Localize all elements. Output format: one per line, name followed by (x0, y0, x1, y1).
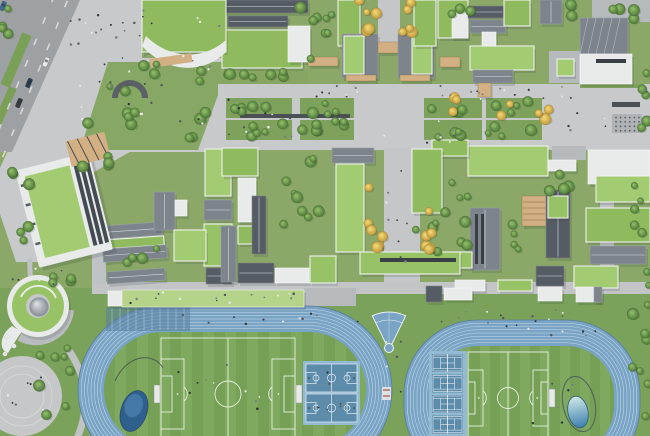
person-dot (233, 316, 235, 318)
building (204, 200, 234, 223)
hoop (353, 377, 355, 379)
building (557, 59, 576, 79)
person-dot (18, 279, 20, 281)
person-dot (594, 330, 596, 332)
building (122, 290, 306, 310)
person-dot (264, 112, 266, 114)
person-dot (30, 383, 32, 385)
skylight-slot (481, 214, 484, 264)
building (470, 46, 536, 73)
tree-green (640, 329, 649, 338)
building (108, 291, 124, 309)
hoop (353, 407, 355, 409)
building (238, 263, 276, 286)
hoop (308, 377, 310, 379)
person-dot (245, 131, 247, 133)
tree-green (248, 122, 257, 131)
tree-green (627, 308, 639, 320)
mow-stripe (225, 332, 236, 436)
person-dot (385, 201, 387, 203)
person-dot (115, 36, 118, 39)
start-zone (106, 307, 190, 331)
tree-green (153, 61, 160, 68)
tree-green (77, 161, 89, 173)
person-dot (229, 302, 231, 304)
person-dot (215, 297, 217, 299)
skylight-dot (634, 125, 636, 127)
person-dot (197, 382, 199, 384)
person-dot (476, 90, 478, 92)
tree-green (130, 108, 139, 117)
person-dot (556, 407, 558, 409)
person-dot (406, 222, 408, 224)
person-dot (336, 85, 338, 87)
person-dot (340, 405, 342, 407)
person-dot (500, 315, 502, 317)
person-dot (502, 317, 504, 319)
tree-green (643, 268, 650, 275)
person-dot (38, 387, 40, 389)
tree-green (511, 230, 518, 237)
tree-green (262, 128, 269, 135)
person-dot (27, 382, 29, 384)
person-dot (40, 377, 42, 379)
person-dot (192, 60, 194, 62)
tree-green (307, 55, 315, 63)
person-dot (179, 298, 181, 300)
person-dot (104, 63, 106, 65)
building (378, 42, 400, 56)
building (586, 208, 650, 245)
tree-green (489, 121, 500, 132)
person-dot (440, 85, 442, 87)
skylight-dot (615, 117, 617, 119)
person-dot (548, 318, 550, 320)
tree-green (637, 123, 646, 132)
skylight-dot (629, 130, 631, 132)
person-dot (326, 409, 328, 411)
person-dot (256, 407, 259, 410)
person-dot (481, 93, 483, 95)
mow-stripe (247, 332, 258, 436)
person-dot (124, 30, 126, 32)
roof (594, 287, 602, 302)
person-dot (316, 315, 318, 317)
person-dot (400, 341, 402, 343)
person-dot (356, 91, 358, 93)
person-dot (299, 317, 301, 319)
tree-green (200, 107, 211, 118)
person-dot (542, 97, 544, 99)
tree-green (136, 253, 147, 264)
person-dot (506, 325, 508, 327)
person-dot (284, 136, 286, 138)
building (504, 0, 532, 29)
skylight-slot (596, 59, 626, 63)
skylight-dot (620, 130, 622, 132)
tree-green (4, 5, 12, 13)
roof (344, 36, 364, 74)
tree-green (195, 77, 204, 86)
person-dot (216, 300, 218, 302)
person-dot (151, 22, 153, 24)
building (412, 149, 444, 216)
person-dot (453, 135, 455, 137)
roof (580, 18, 628, 54)
tree-green (7, 167, 17, 177)
skylight-dot (624, 117, 626, 119)
roof (468, 146, 548, 176)
mow-stripe (520, 346, 530, 436)
person-dot (277, 295, 279, 297)
person-dot (267, 126, 270, 129)
person-dot (290, 135, 292, 137)
tree-green (265, 69, 276, 80)
roof (288, 26, 310, 62)
tree-yellow (535, 109, 543, 117)
building (221, 226, 238, 285)
tree-green (332, 108, 340, 116)
tree-yellow (426, 228, 436, 238)
tree-green (297, 125, 307, 135)
tree-green (485, 130, 491, 136)
person-dot (290, 297, 292, 299)
tree-green (459, 216, 471, 228)
tree-yellow (366, 225, 377, 236)
person-dot (128, 70, 130, 72)
skylight-dot (620, 121, 622, 123)
tree-green (82, 118, 93, 129)
skylight-dot (624, 125, 626, 127)
person-dot (480, 98, 482, 100)
person-dot (133, 22, 135, 24)
mow-stripe (480, 346, 490, 436)
mow-stripe (540, 346, 550, 436)
roof (522, 196, 546, 226)
tree-green (281, 176, 290, 185)
tree-green (61, 402, 69, 410)
tree-green (36, 351, 45, 360)
building (468, 146, 550, 179)
person-dot (569, 129, 571, 131)
roof (580, 54, 632, 84)
tree-green (128, 253, 137, 262)
person-dot (85, 22, 87, 24)
person-dot (91, 32, 93, 34)
person-dot (551, 383, 553, 385)
penalty-spot (278, 393, 280, 395)
tree-green (103, 157, 114, 168)
tree-green (324, 29, 332, 37)
campus-aerial-render (0, 0, 650, 436)
goal (154, 385, 160, 403)
person-dot (142, 16, 144, 18)
person-dot (15, 404, 17, 406)
person-dot (209, 65, 211, 67)
person-dot (605, 125, 607, 127)
building (228, 16, 290, 30)
person-dot (228, 133, 230, 135)
person-dot (438, 120, 440, 122)
penalty-spot (177, 393, 179, 395)
person-dot (129, 302, 131, 304)
person-dot (486, 311, 488, 313)
tree-green (23, 178, 35, 190)
tree-green (23, 221, 34, 232)
tree-green (294, 2, 306, 14)
tree-green (412, 226, 420, 234)
tree-green (239, 69, 249, 79)
roof (400, 75, 430, 81)
tree-green (328, 11, 335, 18)
person-dot (458, 317, 460, 319)
tree-green (307, 107, 319, 119)
person-dot (478, 92, 480, 94)
building (222, 148, 260, 179)
tree-green (340, 118, 348, 126)
person-dot (12, 402, 14, 404)
building (580, 18, 630, 57)
tree-green (291, 191, 303, 203)
tree-green (149, 68, 160, 79)
roof (548, 196, 568, 218)
tree-yellow (544, 105, 553, 114)
person-dot (61, 270, 63, 272)
tree-green (61, 353, 68, 360)
person-dot (201, 122, 203, 124)
person-dot (135, 298, 138, 301)
tree-green (555, 170, 565, 180)
person-dot (207, 322, 209, 324)
tree-green (491, 100, 501, 110)
person-dot (567, 389, 569, 391)
person-dot (34, 268, 36, 270)
person-dot (99, 81, 101, 83)
building (540, 0, 564, 27)
tree-green (66, 274, 76, 284)
person-dot (340, 403, 342, 405)
skylight-dot (615, 130, 617, 132)
roof (122, 290, 304, 307)
person-dot (396, 219, 398, 221)
person-dot (288, 293, 290, 295)
person-dot (155, 297, 157, 299)
tree-green (48, 278, 57, 287)
tree-yellow (448, 107, 457, 116)
tree-green (558, 183, 570, 195)
person-dot (400, 256, 402, 258)
person-dot (110, 24, 112, 26)
person-dot (81, 106, 83, 108)
person-dot (385, 341, 387, 343)
person-dot (137, 311, 139, 313)
building (154, 192, 177, 233)
tree-green (448, 10, 457, 19)
person-dot (199, 21, 201, 23)
person-dot (205, 379, 207, 381)
skylight-dot (634, 130, 636, 132)
person-dot (81, 118, 83, 120)
person-dot (555, 309, 557, 311)
tree-green (515, 246, 522, 253)
person-dot (182, 55, 185, 58)
person-dot (449, 141, 451, 143)
person-dot (7, 394, 9, 396)
person-dot (271, 114, 273, 116)
person-dot (571, 384, 573, 386)
person-dot (383, 135, 385, 137)
field-equipment (382, 387, 391, 400)
tree-green (461, 239, 472, 250)
person-dot (357, 321, 359, 323)
tree-green (153, 245, 160, 252)
person-dot (527, 328, 529, 330)
penalty-spot (478, 397, 480, 399)
building (440, 57, 462, 70)
tree-green (448, 179, 455, 186)
roof (574, 266, 618, 288)
tree-green (456, 194, 463, 201)
layer-sports (78, 306, 640, 436)
person-dot (426, 142, 428, 144)
roof (275, 268, 309, 283)
tree-green (507, 109, 515, 117)
skylight-dot (624, 130, 626, 132)
person-dot (140, 113, 143, 116)
person-dot (110, 85, 113, 88)
building (536, 266, 566, 289)
roof (175, 200, 187, 216)
person-dot (503, 89, 505, 91)
person-dot (70, 20, 72, 22)
person-dot (570, 97, 572, 99)
tree-green (637, 198, 643, 204)
person-dot (227, 99, 229, 101)
person-dot (124, 105, 126, 107)
person-dot (326, 371, 328, 373)
roof (378, 42, 398, 53)
tree-green (432, 220, 439, 227)
person-dot (450, 94, 452, 96)
person-dot (530, 316, 532, 318)
tree-yellow (506, 100, 513, 107)
tree-green (261, 102, 271, 112)
roof (426, 286, 442, 302)
skylight-dot (620, 125, 622, 127)
building (522, 196, 548, 229)
tree-green (309, 16, 318, 25)
person-dot (224, 294, 226, 296)
person-dot (604, 118, 606, 120)
person-dot (387, 219, 389, 221)
plaza-pocket (552, 146, 586, 160)
person-dot (396, 356, 399, 359)
building (444, 288, 474, 303)
person-dot (213, 382, 215, 384)
umbrella-pole (14, 346, 15, 347)
person-dot (387, 192, 389, 194)
building (275, 268, 311, 286)
tree-green (277, 119, 288, 130)
mow-stripe (181, 332, 192, 436)
skylight-dot (638, 121, 640, 123)
person-dot (144, 83, 146, 85)
tree-green (304, 213, 312, 221)
tree-yellow (371, 8, 382, 19)
umbrella-pole (5, 354, 6, 355)
person-dot (109, 81, 111, 83)
person-dot (142, 9, 144, 11)
person-dot (263, 296, 265, 298)
person-dot (567, 125, 569, 127)
skylight-dot (615, 121, 617, 123)
tree-green (644, 301, 650, 308)
building (414, 0, 438, 49)
roof (222, 148, 258, 176)
roof (548, 160, 576, 171)
person-dot (238, 107, 240, 109)
tennis-courts (429, 351, 467, 436)
person-dot (316, 95, 318, 97)
person-dot (321, 91, 323, 93)
roof (538, 287, 562, 301)
roof (174, 230, 206, 261)
tree-green (65, 366, 75, 376)
building (538, 287, 564, 304)
skylight-dot (615, 125, 617, 127)
person-dot (218, 25, 220, 27)
tree-green (322, 100, 329, 107)
tree-green (628, 4, 640, 16)
person-dot (562, 315, 564, 317)
tree-green (311, 119, 321, 129)
person-dot (585, 335, 587, 337)
tree-green (324, 111, 331, 118)
skylight-slot (475, 214, 478, 264)
person-dot (499, 88, 501, 90)
person-dot (128, 103, 130, 105)
person-dot (207, 68, 209, 70)
tree-green (440, 207, 450, 217)
tree-green (19, 236, 27, 244)
person-dot (561, 421, 563, 423)
person-dot (251, 294, 253, 296)
building (346, 75, 378, 84)
roof (346, 75, 376, 81)
mow-stripe (269, 332, 280, 436)
person-dot (582, 330, 584, 332)
tree-green (33, 380, 45, 392)
person-dot (77, 42, 79, 44)
person-dot (95, 32, 97, 34)
building (470, 208, 502, 273)
person-dot (487, 322, 489, 324)
person-dot (262, 319, 264, 321)
building (426, 286, 444, 305)
person-dot (122, 57, 124, 59)
person-dot (576, 112, 578, 114)
tree-green (609, 5, 618, 14)
tree-green (566, 10, 577, 21)
person-dot (197, 17, 199, 19)
person-dot (561, 86, 563, 88)
tree-green (196, 66, 206, 76)
person-dot (144, 55, 146, 57)
skylight-dot (624, 121, 626, 123)
tree-green (464, 193, 471, 200)
person-dot (400, 170, 402, 172)
person-dot (398, 240, 400, 242)
